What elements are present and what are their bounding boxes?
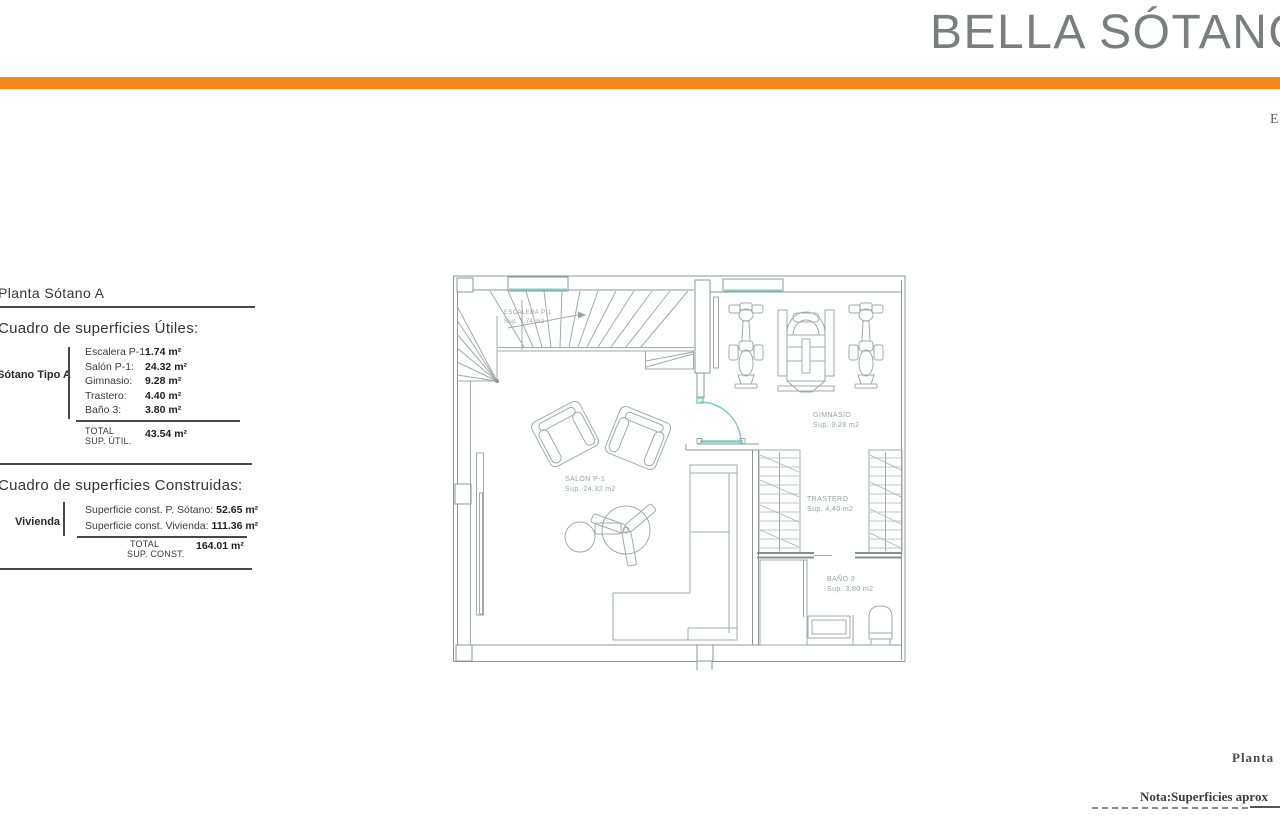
construidas-group-label: Vivienda (15, 516, 60, 528)
room-area-bano: Sup. 3,80 m2 (827, 586, 873, 593)
table-row: Escalera P-1: 1.74 m² (85, 346, 245, 361)
footer-dashed-line (1092, 807, 1248, 809)
newel-post (495, 379, 499, 383)
shelf-unit-icon (869, 450, 902, 553)
wall-stub (697, 373, 704, 398)
wall-element (480, 493, 483, 614)
armchair-icon (604, 405, 673, 472)
divider-line (0, 568, 252, 570)
construidas-total-label2: SUP. CONST. (127, 549, 185, 559)
threshold (757, 553, 902, 558)
construidas-table: Superficie const. P. Sótano: 52.65 m² Su… (85, 503, 240, 534)
wall-pillar (695, 280, 710, 373)
subtotal-line (76, 420, 240, 422)
table-row: Superficie const. P. Sótano: 52.65 m² (85, 503, 240, 519)
utiles-total-label: TOTAL (85, 426, 114, 436)
door-arc-icon (697, 402, 745, 444)
wall-pilaster (455, 484, 471, 504)
table-divider (68, 347, 70, 419)
table-row: Trastero: 4.40 m² (85, 390, 245, 405)
toilet-icon (869, 606, 892, 645)
sink-icon (808, 615, 853, 645)
wall-pilaster (697, 645, 713, 661)
room-label-salon: SALÓN P-1 (565, 474, 605, 483)
edge-letter: E (1270, 112, 1279, 128)
shower-icon (760, 560, 807, 645)
room-label-bano: BAÑO 3 (827, 574, 855, 583)
footer-note: Nota:Superficies aprox (1140, 789, 1268, 805)
table-row: Gimnasio: 9.28 m² (85, 375, 245, 390)
gym-bike-icon (729, 303, 763, 388)
room-area-trastero: Sup. 4,40 m2 (807, 506, 853, 513)
table-row: Baño 3: 3.80 m² (85, 404, 245, 419)
footer-solid-line (1250, 806, 1280, 808)
room-label-trastero: TRASTERO (807, 496, 848, 503)
shelf-unit-icon (759, 450, 800, 553)
room-area-gimnasio: Sup. 9,28 m2 (813, 422, 859, 429)
wall-stub (697, 661, 712, 670)
utiles-table: Escalera P-1: 1.74 m² Salón P-1: 24.32 m… (85, 346, 245, 419)
divider-line (0, 306, 255, 308)
room-label-escalera: ESCALERA P-1 (504, 310, 552, 316)
utiles-total-value: 43.54 m² (145, 428, 187, 440)
window-icon (723, 279, 783, 292)
table-divider (63, 502, 65, 536)
floor-plan-canvas: ESCALERA P-1 Sup. 1,74 m2 SALÓN P-1 Sup.… (450, 268, 915, 670)
gym-bike-icon (849, 303, 883, 388)
construidas-title: Cuadro de superficies Construidas: (0, 477, 243, 494)
surfaces-panel: Planta Sótano A Cuadro de superficies Út… (0, 0, 306, 600)
construidas-total-label: TOTAL (130, 539, 159, 549)
room-area-salon: Sup. 24,32 m2 (565, 486, 616, 493)
panel-heading: Planta Sótano A (0, 285, 104, 301)
subtotal-line (77, 536, 247, 538)
wall-pilaster (457, 278, 473, 292)
table-row: Salón P-1: 24.32 m² (85, 361, 245, 376)
footer-caption: Planta (1232, 750, 1274, 766)
gym-multistation-icon (778, 310, 834, 392)
staircase (457, 291, 694, 383)
utiles-title: Cuadro de superficies Útiles: (0, 320, 198, 337)
plan-walls (454, 276, 906, 670)
stair-arrow-icon (578, 312, 586, 319)
construidas-total-value: 164.01 m² (196, 540, 244, 552)
utiles-group-label: Sótano Tipo A (0, 369, 71, 381)
divider-line (0, 463, 252, 465)
table-set-icon (565, 503, 656, 566)
wall-panel (714, 297, 719, 368)
page-title: BELLA SÓTANO (930, 5, 1280, 60)
room-label-gimnasio: GIMNASIO (813, 412, 851, 419)
room-area-escalera: Sup. 1,74 m2 (504, 319, 545, 325)
wall-pilaster (456, 645, 472, 661)
table-row: Superficie const. Vivienda: 111.36 m² (85, 519, 240, 535)
sofa-icon (613, 465, 737, 640)
utiles-total-label2: SUP. ÚTIL. (85, 436, 131, 446)
window-icon (508, 277, 568, 291)
armchair-icon (529, 399, 600, 468)
